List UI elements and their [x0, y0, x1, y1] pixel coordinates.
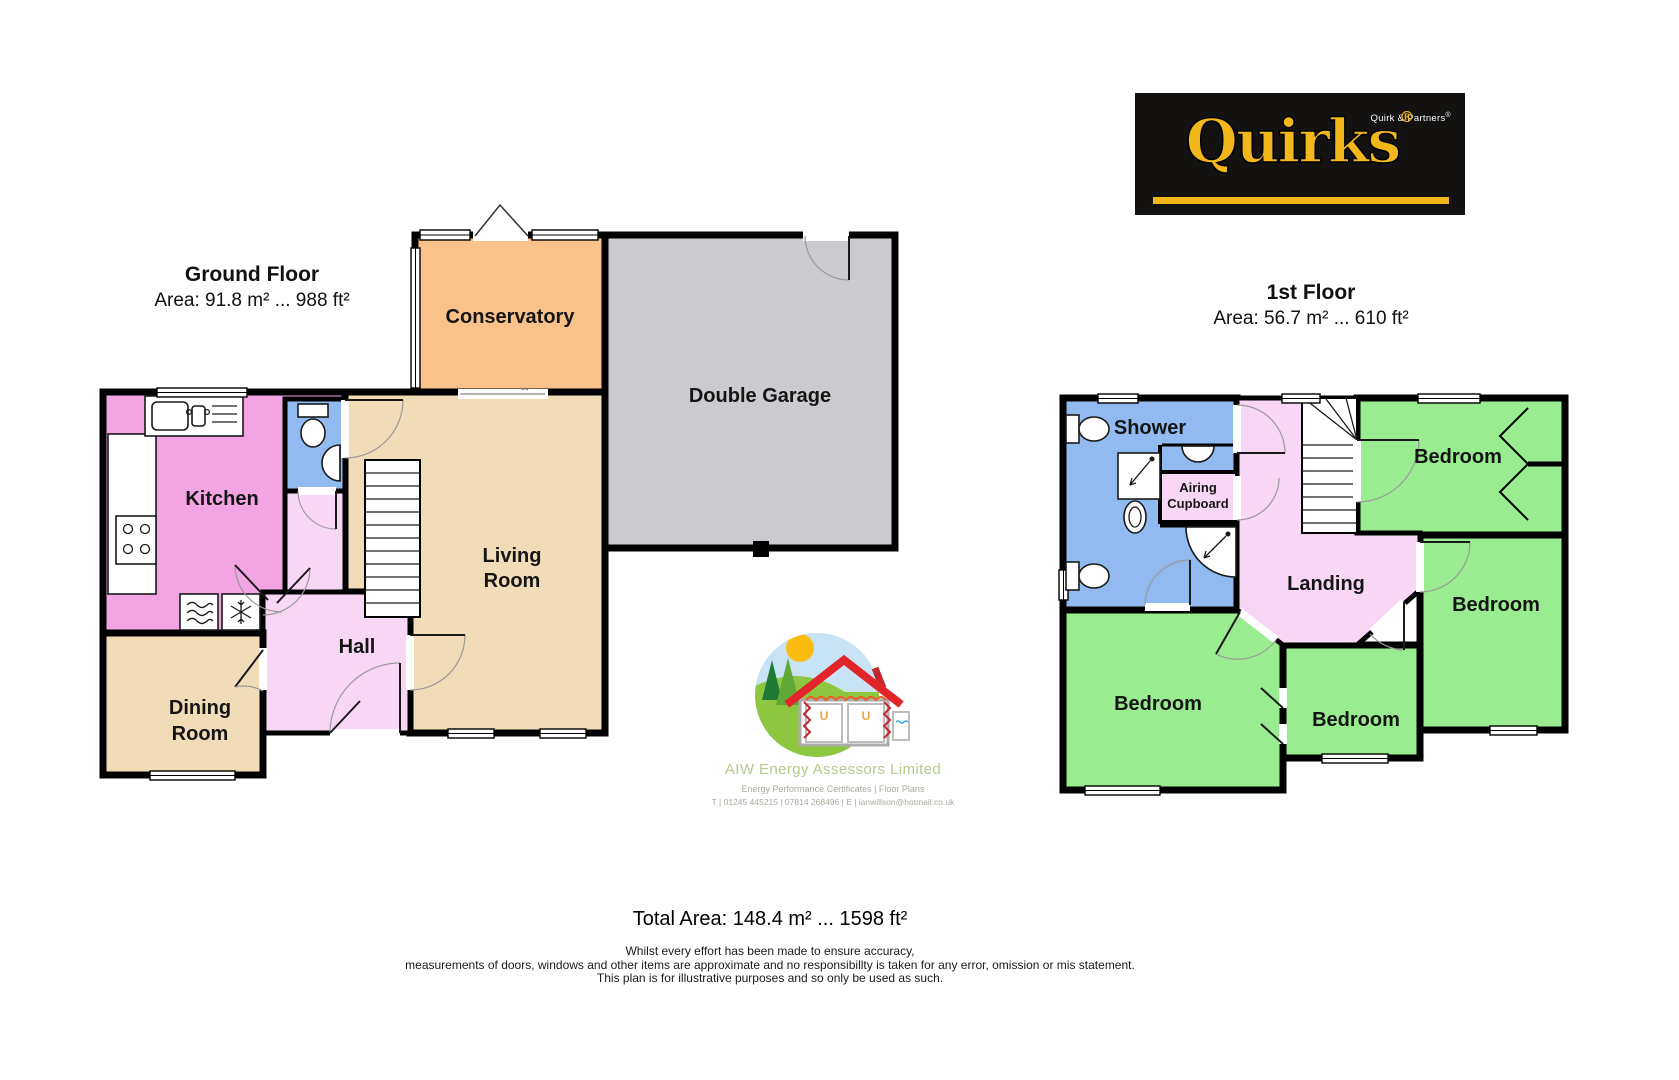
aiw-contact: T | 01245 445215 | 07814 268496 | E | ia… — [683, 797, 983, 807]
room-label-bedroom-top-right: Bedroom — [1414, 446, 1502, 468]
stove-icon — [116, 516, 156, 564]
toilet-icon — [1066, 562, 1109, 590]
shower-tray-icon — [1118, 453, 1160, 499]
conservatory-door — [473, 205, 528, 241]
garage-wall-pier — [753, 541, 769, 557]
aiw-services: Energy Performance Certificates | Floor … — [683, 784, 983, 794]
floorplan-page: Ground Floor Area: 91.8 m² ... 988 ft² 1… — [0, 0, 1679, 1080]
disclaimer-line-1: Whilst every effort has been made to ens… — [35, 945, 1505, 959]
room-label-conservatory: Conservatory — [446, 306, 576, 328]
room-label-living-1: Living — [483, 545, 542, 567]
pedestal-basin-icon — [1124, 501, 1146, 533]
room-label-landing: Landing — [1287, 573, 1365, 595]
sun-icon — [786, 634, 814, 662]
room-label-bedroom-bottom-center: Bedroom — [1312, 709, 1400, 731]
toilet-icon — [1066, 415, 1109, 443]
room-label-garage: Double Garage — [689, 385, 831, 407]
first-floor-title: 1st Floor — [1161, 280, 1461, 306]
staircase — [1302, 398, 1357, 533]
room-label-airing-2: Cupboard — [1167, 496, 1228, 511]
room-label-dining-2: Room — [172, 723, 229, 745]
room-label-bedroom-right: Bedroom — [1452, 594, 1540, 616]
room-label-airing-1: Airing — [1179, 480, 1217, 495]
washing-machine-icon — [180, 594, 218, 630]
summary-block: Total Area: 148.4 m² ... 1598 ft² Whilst… — [35, 908, 1505, 986]
first-floor-area: Area: 56.7 m² ... 610 ft² — [1161, 306, 1461, 331]
room-bedroom-right — [1420, 535, 1565, 730]
total-area-text: Total Area: 148.4 m² ... 1598 ft² — [35, 908, 1505, 931]
aiw-text-block: AIW Energy Assessors Limited Energy Perf… — [683, 761, 983, 807]
room-label-hall: Hall — [339, 636, 376, 658]
room-label-dining-1: Dining — [169, 697, 231, 719]
room-label-living-2: Room — [484, 570, 541, 592]
quirks-wordmark-text: Quirks — [1186, 107, 1400, 177]
room-label-shower: Shower — [1114, 417, 1186, 439]
quirks-wordmark: Quirks® — [1135, 107, 1465, 177]
u-value-letter: U — [820, 709, 829, 723]
first-floor-plan: Shower Airing Cupboard Landing Bedroom B… — [1050, 388, 1575, 803]
disclaimer-line-3: This plan is for illustrative purposes a… — [35, 972, 1505, 986]
quirks-logo: Quirk & Partners® Quirks® — [1135, 93, 1465, 215]
room-label-bedroom-bottom-left: Bedroom — [1114, 693, 1202, 715]
door-arrow-symbol: ↔ — [519, 380, 531, 394]
staircase — [365, 460, 420, 617]
quirks-underline — [1153, 197, 1449, 204]
room-bedroom-bottom-center — [1283, 645, 1420, 758]
disclaimer-line-2: measurements of doors, windows and other… — [35, 959, 1505, 973]
registered-mark-icon: ® — [1399, 108, 1414, 126]
aiw-company-name: AIW Energy Assessors Limited — [683, 761, 983, 778]
oil-tank — [893, 712, 909, 740]
toilet-icon — [298, 404, 328, 447]
freezer-icon — [222, 594, 260, 630]
room-label-kitchen: Kitchen — [185, 488, 258, 510]
first-floor-header: 1st Floor Area: 56.7 m² ... 610 ft² — [1161, 280, 1461, 331]
aiw-logo: U U — [740, 622, 920, 762]
u-value-letter: U — [862, 709, 871, 723]
